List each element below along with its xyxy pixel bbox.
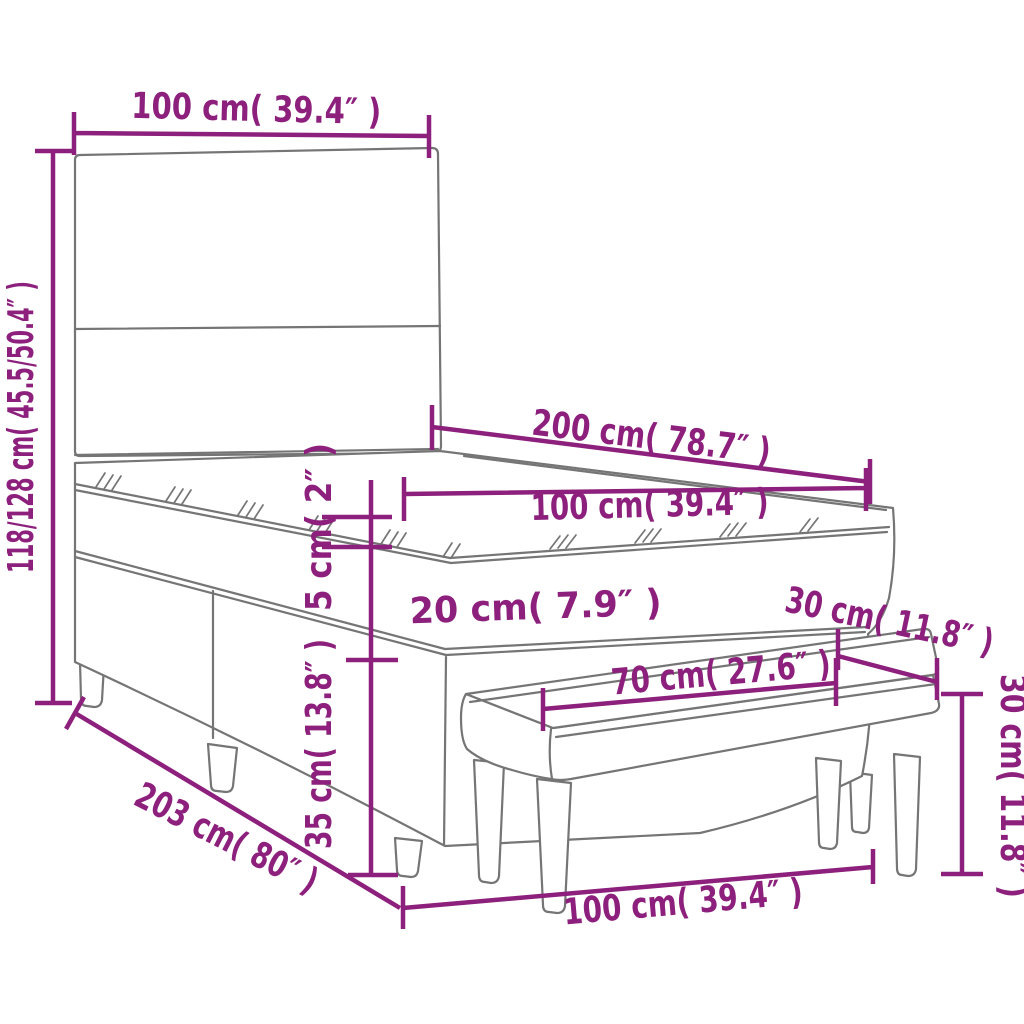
bench-leg: [474, 760, 504, 883]
label-total-height: 118/128 cm( 45.5/50.4″ ): [1, 281, 42, 573]
bed-leg: [208, 744, 237, 792]
label-bench-length: 100 cm( 39.4″ ): [562, 872, 805, 934]
label-topper-height: 5 cm( 2″ ): [299, 443, 340, 611]
bench-leg: [816, 758, 841, 849]
label-headboard-width: 100 cm( 39.4″ ): [131, 86, 382, 134]
label-mattress-width: 100 cm( 39.4″ ): [530, 482, 769, 529]
headboard: [75, 148, 441, 456]
label-mattress-length: 200 cm( 78.7″ ): [530, 403, 773, 473]
label-bed-base-length: 203 cm( 80″ ): [128, 775, 325, 902]
label-bench-height: 30 cm( 11.8″ ): [992, 674, 1024, 898]
headboard-panel: [75, 148, 441, 456]
bed-dimension-diagram: 100 cm( 39.4″ ) 118/128 cm( 45.5/50.4″ )…: [0, 0, 1024, 1024]
dim-line-bench-height: [941, 694, 983, 874]
label-base-height: 35 cm( 13.8″ ): [299, 639, 340, 849]
diagram-canvas: 100 cm( 39.4″ ) 118/128 cm( 45.5/50.4″ )…: [0, 0, 1024, 1024]
bench-leg: [894, 754, 920, 876]
furniture-outline: [75, 148, 939, 913]
bed-leg: [395, 838, 422, 877]
